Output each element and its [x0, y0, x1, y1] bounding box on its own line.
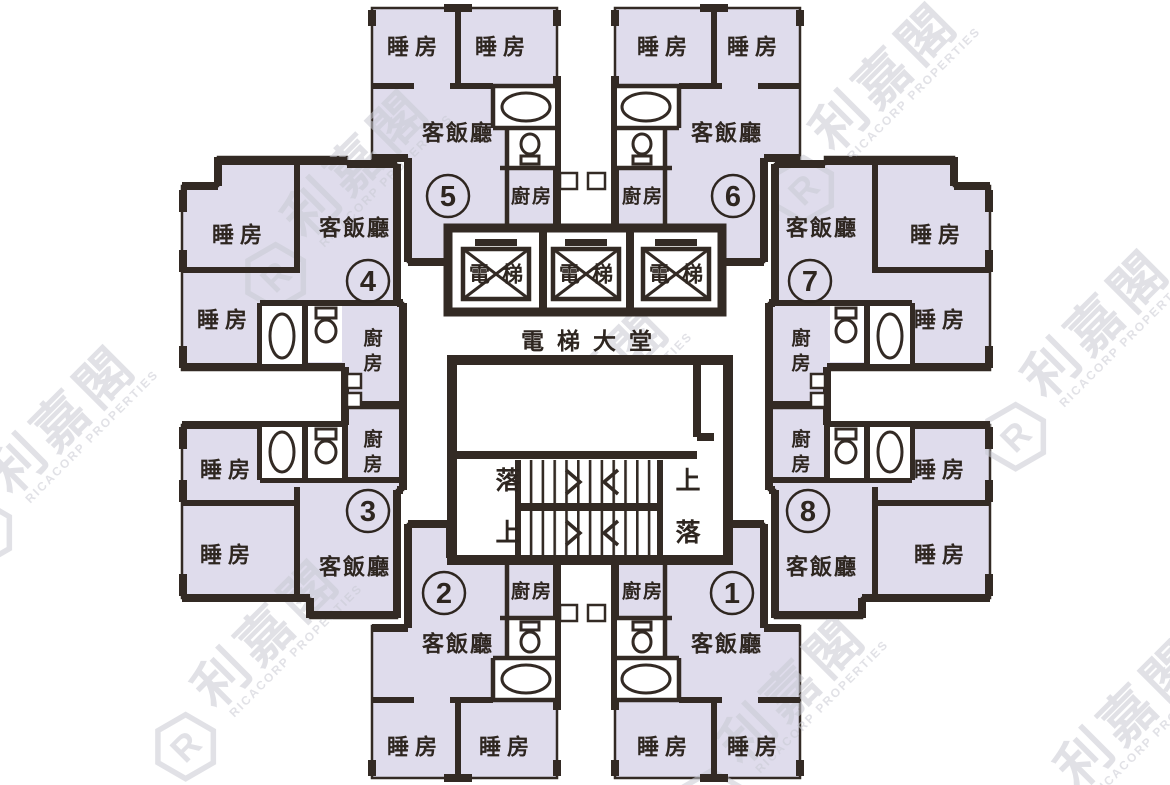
stair-rail	[518, 503, 660, 511]
toilet-icon	[836, 308, 856, 342]
bedroom-label: 睡房	[637, 35, 693, 60]
watermark-brand-cn: 利嘉閣	[800, 0, 972, 162]
bedroom-label: 睡房	[479, 735, 535, 760]
duct-shaft	[347, 393, 361, 407]
living-dining-label: 客飯廳	[422, 632, 494, 657]
duct-shaft	[811, 393, 825, 407]
kitchen-label: 廚房	[622, 580, 664, 603]
elevator-label: 電梯	[559, 263, 625, 287]
kitchen-label: 廚房	[511, 185, 553, 208]
stair-down-label: 落	[495, 467, 521, 495]
stair-treads-lower	[518, 511, 660, 555]
living-dining-label: 客飯廳	[786, 555, 858, 580]
unit-number-text: 3	[360, 496, 376, 528]
toilet-icon	[633, 134, 651, 164]
stair-treads-upper	[518, 460, 660, 504]
bedroom-label: 睡房	[200, 458, 256, 483]
stair-up-label: 上	[495, 519, 520, 547]
bedroom-label: 睡房	[727, 735, 783, 760]
bedroom-label: 睡房	[197, 308, 253, 333]
toilet-icon	[316, 308, 336, 342]
living-dining-label: 客飯廳	[319, 555, 391, 580]
duct-shaft	[588, 605, 605, 621]
unit-number-text: 4	[360, 266, 376, 298]
living-dining-label: 客飯廳	[786, 216, 858, 241]
staircase: 落 上 上 落	[452, 360, 728, 560]
elevator-door	[565, 239, 607, 246]
living-dining-label: 客飯廳	[319, 216, 391, 241]
unit-number-text: 5	[440, 181, 456, 213]
bedroom-label: 睡房	[387, 735, 443, 760]
watermark-brand-cn: 利嘉閣	[1045, 628, 1170, 785]
bathtub-icon	[622, 665, 670, 693]
logo-letter: R	[162, 723, 209, 770]
bathtub-icon	[502, 93, 550, 121]
bathtub-icon	[502, 665, 550, 693]
bathtub-icon	[878, 432, 902, 472]
kitchen-label: 廚	[363, 428, 382, 451]
kitchen-label: 房	[791, 453, 810, 476]
logo-letter: R	[992, 413, 1039, 460]
bedroom-label: 睡房	[387, 35, 443, 60]
kitchen-label: 廚房	[511, 580, 553, 603]
bedroom-label: 睡房	[910, 223, 966, 248]
kitchen-label: 廚房	[622, 185, 664, 208]
elevator-label: 電梯	[649, 263, 715, 287]
bedroom-label: 睡房	[200, 543, 256, 568]
watermark: R 利嘉閣 RICACORP PROPERTIES	[0, 328, 174, 584]
bedroom-label: 睡房	[727, 35, 783, 60]
toilet-icon	[633, 622, 651, 652]
toilet-icon	[521, 134, 539, 164]
toilet-icon	[836, 429, 856, 463]
floor-plan: R 利嘉閣 RICACORP PROPERTIES R 利嘉閣 RICACORP…	[0, 0, 1170, 785]
duct-shaft	[811, 374, 825, 388]
kitchen-label: 房	[791, 352, 810, 375]
bathtub-icon	[622, 93, 670, 121]
elevator-label: 電梯	[469, 263, 535, 287]
kitchen-label: 房	[363, 352, 382, 375]
bathtub-icon	[878, 314, 902, 358]
bedroom-label: 睡房	[637, 735, 693, 760]
bedroom-label: 睡房	[475, 35, 531, 60]
bedroom-label: 睡房	[212, 223, 268, 248]
kitchen-label: 廚	[791, 327, 810, 350]
kitchen-label: 廚	[791, 428, 810, 451]
unit-number-text: 7	[802, 266, 818, 298]
elevator-door	[655, 239, 697, 246]
bedroom-label: 睡房	[914, 543, 970, 568]
kitchen-label: 房	[363, 453, 382, 476]
unit-number-text: 6	[725, 181, 741, 213]
bedroom-label: 睡房	[914, 308, 970, 333]
unit-number-text: 8	[800, 496, 816, 528]
watermark-brand-cn: 利嘉閣	[0, 334, 150, 506]
elevator-door	[475, 239, 517, 246]
living-dining-label: 客飯廳	[422, 121, 494, 146]
watermark: 利嘉閣 RICACORP PROPERTIES	[1045, 622, 1170, 785]
stair-down-label: 落	[675, 519, 701, 547]
floor-plan-canvas: R 利嘉閣 RICACORP PROPERTIES R 利嘉閣 RICACORP…	[0, 0, 1170, 785]
core: 電梯 電梯 電梯 電梯大堂	[448, 173, 728, 621]
living-dining-label: 客飯廳	[691, 121, 763, 146]
unit-number-text: 1	[724, 578, 740, 610]
unit-number-text: 2	[436, 578, 452, 610]
bathtub-icon	[270, 314, 294, 358]
elevator-lobby-label: 電梯大堂	[521, 328, 665, 354]
kitchen-label: 廚	[363, 327, 382, 350]
toilet-icon	[521, 622, 539, 652]
elevator-bank: 電梯 電梯 電梯	[448, 228, 722, 312]
living-dining-label: 客飯廳	[691, 632, 763, 657]
duct-shaft	[347, 374, 361, 388]
toilet-icon	[316, 429, 336, 463]
stair-up-label: 上	[675, 467, 700, 495]
bedroom-label: 睡房	[914, 458, 970, 483]
bathtub-icon	[270, 432, 294, 472]
duct-shaft	[560, 173, 577, 189]
duct-shaft	[560, 605, 577, 621]
duct-shaft	[588, 173, 605, 189]
